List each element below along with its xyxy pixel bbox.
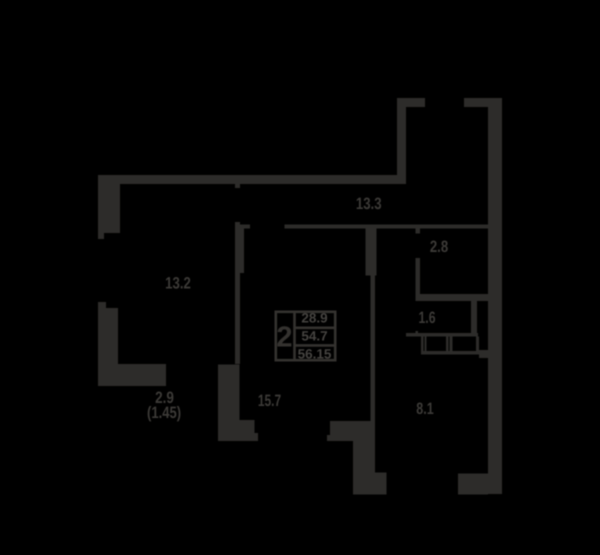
svg-text:13.3: 13.3: [356, 195, 382, 213]
svg-text:15.7: 15.7: [258, 392, 281, 410]
svg-text:2: 2: [276, 322, 292, 354]
svg-text:2.8: 2.8: [430, 238, 448, 256]
svg-text:28.9: 28.9: [301, 310, 327, 325]
svg-text:1.6: 1.6: [419, 309, 436, 327]
svg-text:56.15: 56.15: [298, 346, 332, 361]
svg-text:13.2: 13.2: [165, 275, 191, 293]
svg-text:54.7: 54.7: [301, 328, 327, 343]
svg-text:(1.45): (1.45): [147, 404, 181, 422]
svg-text:8.1: 8.1: [416, 400, 433, 418]
